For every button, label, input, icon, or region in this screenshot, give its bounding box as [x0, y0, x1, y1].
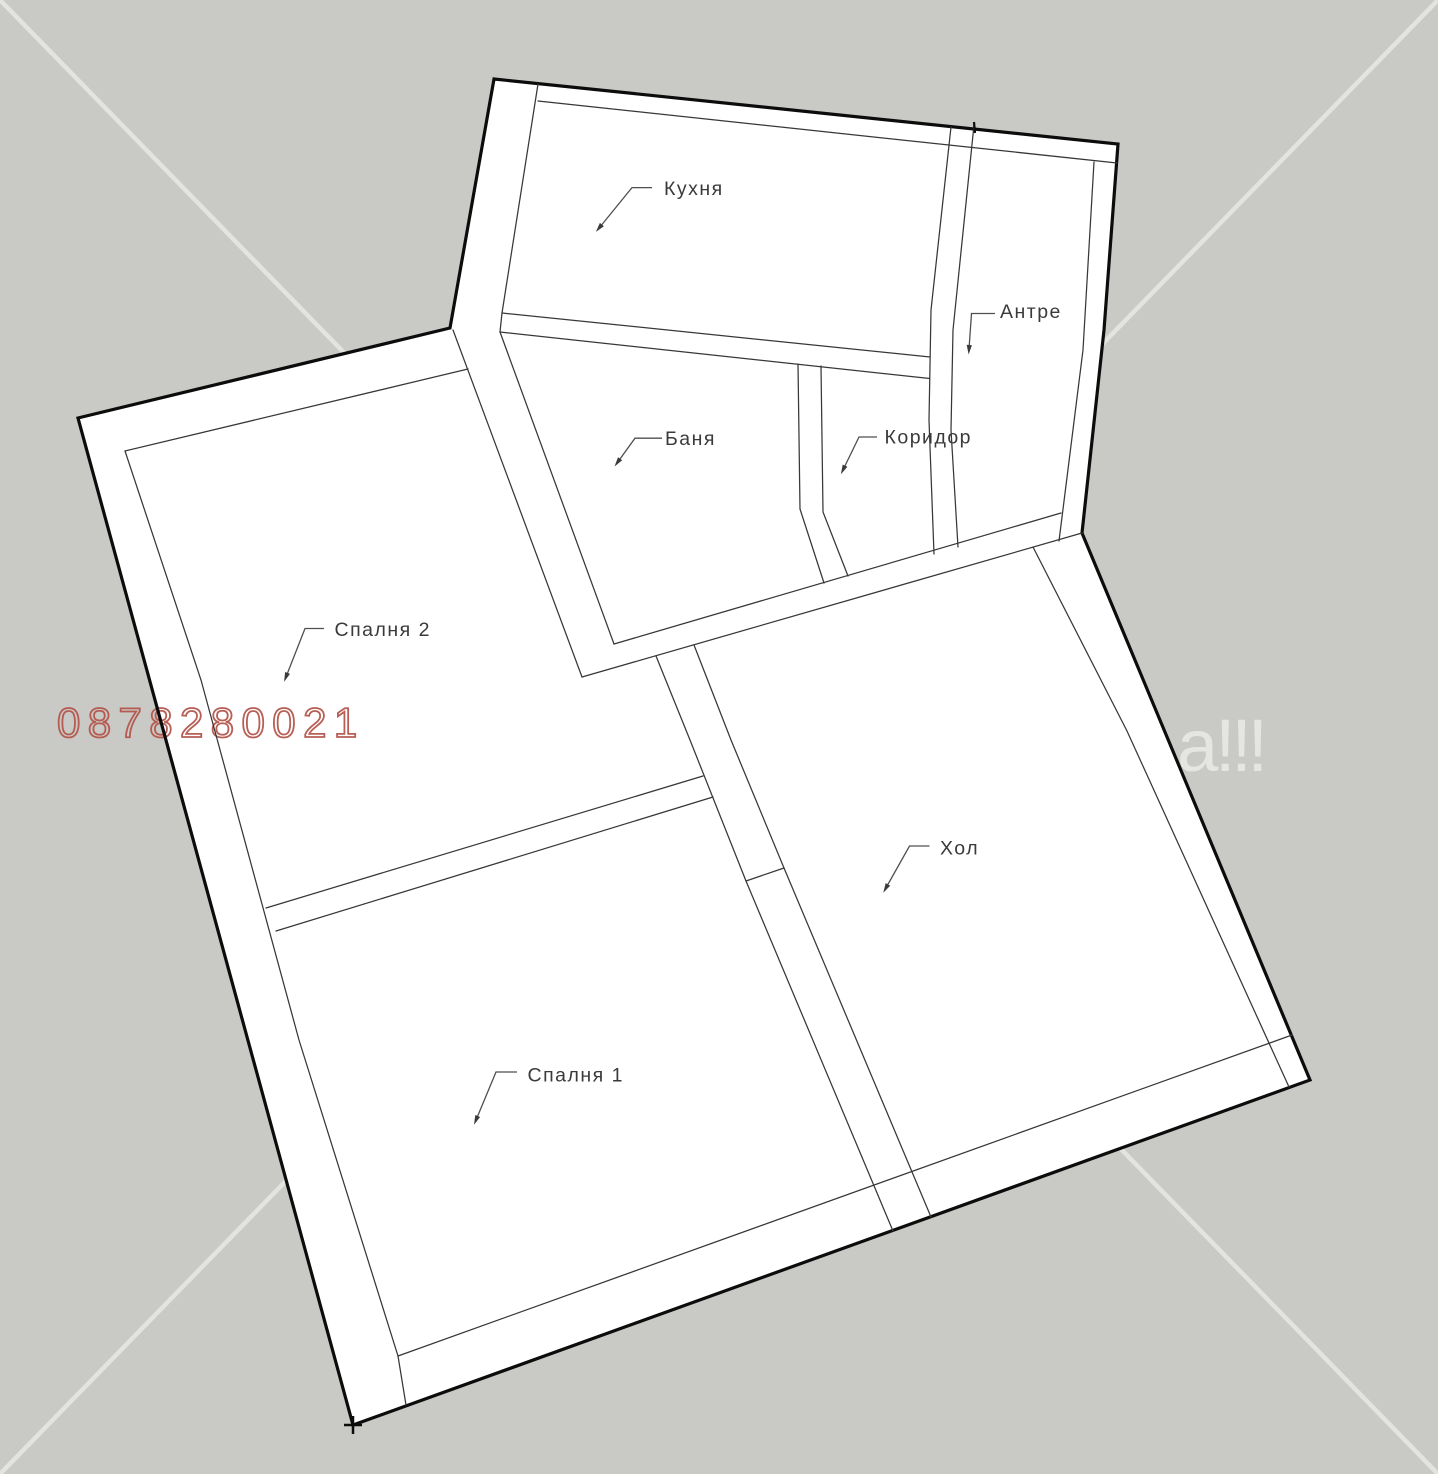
svg-text:Спалня 1: Спалня 1 [528, 1065, 624, 1087]
svg-text:Спалня 2: Спалня 2 [335, 619, 431, 641]
svg-text:Баня: Баня [665, 428, 716, 450]
svg-text:!!!: !!! [1215, 704, 1264, 787]
svg-text:0878280021: 0878280021 [57, 699, 365, 746]
svg-text:Коридор: Коридор [885, 427, 973, 449]
svg-text:Кухня: Кухня [664, 178, 724, 200]
svg-text:Хол: Хол [940, 838, 979, 860]
svg-text:Антре: Антре [1000, 301, 1062, 323]
